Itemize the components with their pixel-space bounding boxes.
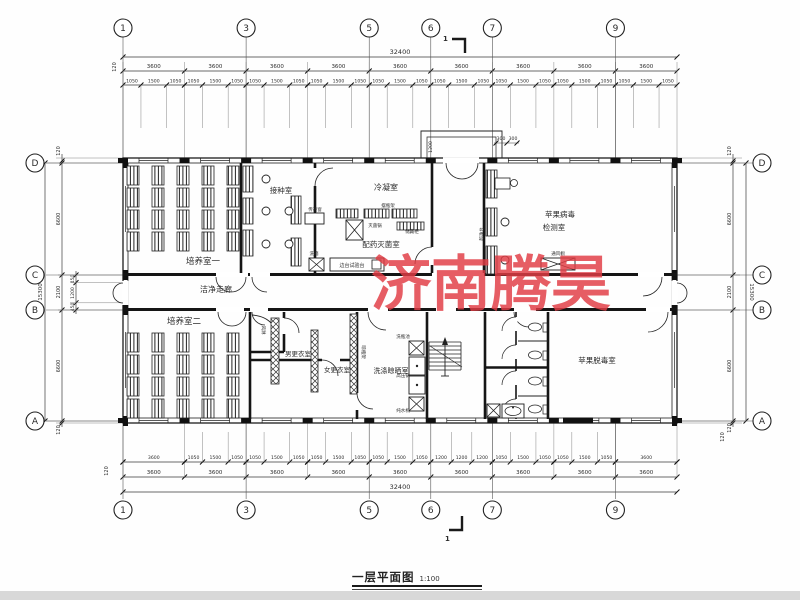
axis-label-top: 1 <box>120 24 126 34</box>
dim-label: 3600 <box>516 64 530 70</box>
door-opening <box>515 345 518 359</box>
dim-label: 1050 <box>539 79 551 85</box>
axis-label-left: B <box>32 306 38 316</box>
watermark: 济南腾昊 <box>371 252 611 318</box>
toilet-tank <box>543 351 547 360</box>
dim-edge-top-left: 120 <box>112 62 118 72</box>
axis-label-top: 7 <box>489 24 495 34</box>
room-label: 冷凝室 <box>374 182 398 192</box>
door-arc <box>643 277 662 296</box>
axis-label-right: D <box>759 159 766 169</box>
axis-label-bottom: 7 <box>489 506 495 516</box>
wall-pier <box>549 158 559 163</box>
dim-label: 1200 <box>70 287 76 299</box>
dim-label: 1050 <box>249 79 261 85</box>
culture-rack <box>227 188 239 207</box>
door-arc <box>677 293 687 303</box>
axis-label-top: 5 <box>366 24 372 34</box>
dim-label: 3600 <box>393 64 407 70</box>
axis-label-right: B <box>759 306 765 316</box>
dim-label: 1500 <box>209 79 221 85</box>
culture-rack <box>202 188 214 207</box>
dim-label: 3600 <box>270 64 284 70</box>
dim-label: 1500 <box>517 79 529 85</box>
axis-label-right: C <box>759 271 765 281</box>
equipment-label: 晾瓶架 <box>360 345 367 359</box>
culture-rack <box>127 210 139 229</box>
equipment-label: 洗箱 <box>310 250 319 257</box>
title-underline-thick <box>352 585 482 587</box>
dim-label: 120 <box>727 146 733 156</box>
culture-rack <box>177 166 189 185</box>
dim-label: 6600 <box>56 213 62 226</box>
stool <box>285 207 293 215</box>
equipment-label: 边台试验台 <box>339 262 364 269</box>
room-label: 接种室 <box>270 185 293 195</box>
culture-rack <box>127 377 139 396</box>
dim-label: 3600 <box>578 470 592 476</box>
dim-label: 1050 <box>495 79 507 85</box>
door-opening <box>216 307 244 312</box>
door-arc <box>252 277 267 292</box>
stair-break <box>430 346 462 367</box>
dim-label: 3600 <box>640 455 652 461</box>
dim-label: 1500 <box>271 79 283 85</box>
culture-rack <box>227 210 239 229</box>
dim-label: 1050 <box>416 79 428 85</box>
room-label: 培养室一 <box>186 256 221 267</box>
door-arc <box>284 318 299 333</box>
dim-label: 1050 <box>354 79 366 85</box>
dim-label: 1500 <box>579 79 591 85</box>
dim-label: 1050 <box>231 79 243 85</box>
culture-rack <box>127 355 139 374</box>
door-arc <box>113 293 123 303</box>
axis-label-left: A <box>32 417 39 427</box>
dim-label: 1500 <box>394 79 406 85</box>
section-mark-bottom-label: 1 <box>445 535 450 543</box>
dim-label: 1050 <box>495 455 507 461</box>
drawing-title: 一层平面图 <box>352 570 415 584</box>
dim-label: 1500 <box>394 455 406 461</box>
drawing-title-block: 一层平面图1:100 <box>352 566 492 585</box>
dim-label: 1500 <box>333 455 345 461</box>
dim-label: 1200 <box>456 455 468 461</box>
culture-rack <box>202 399 214 418</box>
dim-label: 1050 <box>293 455 305 461</box>
dim-label: 1500 <box>579 455 591 461</box>
dim-label: 3600 <box>639 470 653 476</box>
title-underline-thin <box>352 589 482 590</box>
clean-bench <box>486 208 497 236</box>
dim-label: 3600 <box>148 455 160 461</box>
wall-pier <box>487 158 497 163</box>
wall-pier <box>487 418 497 423</box>
room-label: 女更衣室 <box>324 365 351 374</box>
basin-tap <box>512 407 514 409</box>
dim-overall-bottom: 32400 <box>390 483 411 491</box>
dim-label: 1050 <box>293 79 305 85</box>
dim-label: 3600 <box>455 470 469 476</box>
axis-label-right: A <box>759 417 766 427</box>
culture-rack <box>127 166 139 185</box>
wall-pier <box>426 158 436 163</box>
door-arc <box>677 283 687 293</box>
dim-label: 1050 <box>539 455 551 461</box>
toilet-tank <box>543 377 547 386</box>
dim-label: 1050 <box>249 455 261 461</box>
culture-rack <box>227 399 239 418</box>
wall-pier <box>241 158 251 163</box>
dim-label: 1050 <box>557 79 569 85</box>
culture-rack <box>177 188 189 207</box>
culture-rack <box>202 377 214 396</box>
culture-rack <box>202 333 214 352</box>
dim-label: 1500 <box>517 455 529 461</box>
wall-pier <box>180 158 190 163</box>
wall-pier <box>180 418 190 423</box>
blueprint-page: 1 1 324001203600360036003600360036003600… <box>0 0 800 600</box>
door-opening <box>646 307 670 312</box>
culture-rack <box>227 355 239 374</box>
dim-label: 3600 <box>393 470 407 476</box>
culture-rack <box>152 232 164 251</box>
wall-pier <box>364 158 374 163</box>
rack <box>243 198 253 224</box>
dim-label: 1500 <box>456 79 468 85</box>
culture-rack <box>202 166 214 185</box>
dim-label: 120 <box>727 423 733 433</box>
dim-label: 1050 <box>372 79 384 85</box>
stall-door-arc <box>502 371 516 385</box>
wall-pier <box>303 158 313 163</box>
equipment-label: 超净台 <box>478 227 485 241</box>
stool <box>501 218 509 226</box>
bench-rack <box>336 209 358 218</box>
axis-label-left: C <box>32 271 38 281</box>
toilet <box>529 405 542 413</box>
door-arc <box>446 163 462 179</box>
dim-label: 3600 <box>578 64 592 70</box>
dim-label: 3600 <box>331 64 345 70</box>
room-label: 苹果病毒 <box>545 209 575 219</box>
axis-label-bottom: 6 <box>428 506 434 516</box>
toilet-tank <box>543 323 547 332</box>
toilet <box>529 351 542 359</box>
culture-rack <box>177 377 189 396</box>
dim-label: 1500 <box>640 79 652 85</box>
culture-rack <box>202 232 214 251</box>
stool <box>262 240 270 248</box>
dim-edge-bottom-left: 120 <box>104 466 110 476</box>
door-arc <box>648 312 668 332</box>
equipment-label: 风淋 <box>260 326 267 335</box>
culture-rack <box>177 232 189 251</box>
axis-label-top: 6 <box>428 24 434 34</box>
equipment-label: 摆瓶架 <box>381 202 395 209</box>
door-arc <box>113 283 123 293</box>
dim-label: 1050 <box>231 455 243 461</box>
equipment-label: 灭菌锅 <box>368 222 382 229</box>
dim-overall-left: 15300 <box>38 283 44 301</box>
axis-label-bottom: 9 <box>613 506 619 516</box>
culture-rack <box>227 377 239 396</box>
room-label: 苹果脱毒室 <box>578 355 616 365</box>
dim-label: 1500 <box>333 79 345 85</box>
culture-rack <box>177 399 189 418</box>
culture-rack <box>227 166 239 185</box>
dim-label: 3600 <box>516 470 530 476</box>
wall-pier <box>549 418 559 423</box>
room-label: 检测室 <box>543 222 566 232</box>
axis-label-bottom: 3 <box>243 506 249 516</box>
drawing-scale: 1:100 <box>420 575 440 583</box>
dim-label: 3600 <box>331 470 345 476</box>
culture-rack <box>152 355 164 374</box>
toilet-tank <box>543 405 547 414</box>
pass-window <box>305 213 324 224</box>
dim-label: 1050 <box>354 455 366 461</box>
dim-overall-right: 15300 <box>748 283 754 301</box>
axis-label-top: 9 <box>613 24 619 34</box>
dim-label: 1500 <box>148 79 160 85</box>
door-opening <box>443 157 479 163</box>
wall-pier <box>610 158 620 163</box>
basin <box>495 178 510 189</box>
culture-rack <box>202 355 214 374</box>
dim-label: 1050 <box>372 455 384 461</box>
room-label: 洁净走廊 <box>200 284 232 294</box>
dim-label: 1050 <box>188 455 200 461</box>
dim-label: 3600 <box>270 470 284 476</box>
equipment-label: 洗瓶池 <box>396 333 410 340</box>
toilet <box>529 377 542 385</box>
dim-label: 1050 <box>311 79 323 85</box>
wall-pier <box>610 418 620 423</box>
culture-rack <box>152 210 164 229</box>
stair-arrow-head <box>442 337 448 345</box>
axis-label-bottom: 1 <box>120 506 126 516</box>
door-opening <box>638 272 664 277</box>
dim-label: 1050 <box>557 455 569 461</box>
wall-pier <box>303 418 313 423</box>
dim-label: 1050 <box>662 79 674 85</box>
culture-rack <box>152 399 164 418</box>
door-arc <box>218 312 232 326</box>
dim-label: 2100 <box>56 286 62 299</box>
culture-rack <box>227 232 239 251</box>
culture-rack <box>202 210 214 229</box>
axis-label-left: D <box>32 159 39 169</box>
door-threshold <box>563 418 593 424</box>
door-opening <box>250 272 270 277</box>
culture-rack <box>152 333 164 352</box>
axis-label-top: 3 <box>243 24 249 34</box>
basin-bowl <box>511 180 518 187</box>
rack <box>243 166 253 192</box>
door-opening <box>122 281 129 305</box>
dim-label: 6600 <box>727 360 733 373</box>
dim-label: 1500 <box>271 455 283 461</box>
wall-pier <box>672 416 677 426</box>
dim-label: 1050 <box>416 455 428 461</box>
dim-label: 2100 <box>727 286 733 299</box>
culture-rack <box>177 210 189 229</box>
culture-rack <box>152 188 164 207</box>
dim-porch: 300 <box>509 136 518 142</box>
dim-label: 6600 <box>56 360 62 373</box>
dim-porch: 300 <box>497 136 506 142</box>
dim-label: 1050 <box>126 79 138 85</box>
dim-porch: 1200 <box>428 141 434 153</box>
locker-rack <box>350 314 357 394</box>
dim-label: 1200 <box>435 455 447 461</box>
dim-label: 1050 <box>601 455 613 461</box>
culture-rack <box>152 166 164 185</box>
dim-label: 1050 <box>170 79 182 85</box>
equipment-label: 高压锅 <box>396 372 410 379</box>
door-arc <box>315 168 333 186</box>
door-arc <box>357 393 373 409</box>
culture-rack <box>127 188 139 207</box>
door-arc <box>462 163 478 179</box>
toilet <box>529 323 542 331</box>
dim-label: 1050 <box>434 79 446 85</box>
dim-label: 6600 <box>727 213 733 226</box>
dim-overall-top: 32400 <box>390 48 411 56</box>
room-label: 培养室二 <box>167 316 202 327</box>
bench-rack <box>364 209 389 218</box>
autoclave-dot <box>416 365 418 367</box>
room-label: 配药灭菌室 <box>362 239 400 249</box>
door-opening <box>515 371 518 385</box>
stool <box>262 175 270 183</box>
dim-label: 3600 <box>147 64 161 70</box>
section-mark-top-label: 1 <box>443 35 448 43</box>
dim-label: 1050 <box>188 79 200 85</box>
rack <box>243 230 253 256</box>
bench-rack <box>397 222 424 230</box>
dim-label: 1050 <box>619 79 631 85</box>
stool <box>262 207 270 215</box>
wall-pier <box>672 158 677 168</box>
dim-label: 3600 <box>455 64 469 70</box>
porch-outline <box>427 137 496 158</box>
culture-rack <box>227 333 239 352</box>
dim-label: 120 <box>56 146 62 156</box>
stall-door-arc <box>502 345 516 359</box>
stool <box>285 240 293 248</box>
wall-pier <box>364 418 374 423</box>
door-arc <box>232 312 246 326</box>
autoclave-dot <box>416 384 418 386</box>
culture-rack <box>177 355 189 374</box>
dim-label: 1050 <box>478 79 490 85</box>
section-mark-bottom-icon <box>449 516 462 530</box>
equipment-label: 传递窗 <box>308 206 322 213</box>
bench-rack <box>392 209 417 218</box>
section-mark-top-icon <box>452 39 465 53</box>
culture-rack <box>127 232 139 251</box>
room-label: 男更衣室 <box>285 349 312 358</box>
door-opening <box>250 307 268 312</box>
dim-label: 3600 <box>639 64 653 70</box>
door-arc <box>252 312 265 325</box>
locker-rack <box>311 330 318 392</box>
dim-label: 3600 <box>208 470 222 476</box>
locker-rack <box>271 318 279 384</box>
culture-rack <box>127 333 139 352</box>
dim-label: 120 <box>56 425 62 435</box>
culture-rack <box>177 333 189 352</box>
equipment-label: 储藏柜 <box>405 228 419 235</box>
door-opening <box>672 281 679 305</box>
door-arc <box>231 277 246 292</box>
dim-edge-bottom-right: 120 <box>720 432 726 442</box>
dim-label: 1500 <box>209 455 221 461</box>
axis-label-bottom: 5 <box>366 506 372 516</box>
culture-rack <box>152 377 164 396</box>
scan-edge <box>0 591 800 600</box>
door-opening <box>216 272 248 277</box>
dim-label: 1050 <box>601 79 613 85</box>
culture-rack <box>127 399 139 418</box>
dim-label: 1050 <box>311 455 323 461</box>
dim-label: 1200 <box>476 455 488 461</box>
dim-label: 3600 <box>147 470 161 476</box>
dim-label: 3600 <box>208 64 222 70</box>
equipment-label: 纯水机 <box>396 407 410 414</box>
dim-label: 450 <box>70 275 76 284</box>
